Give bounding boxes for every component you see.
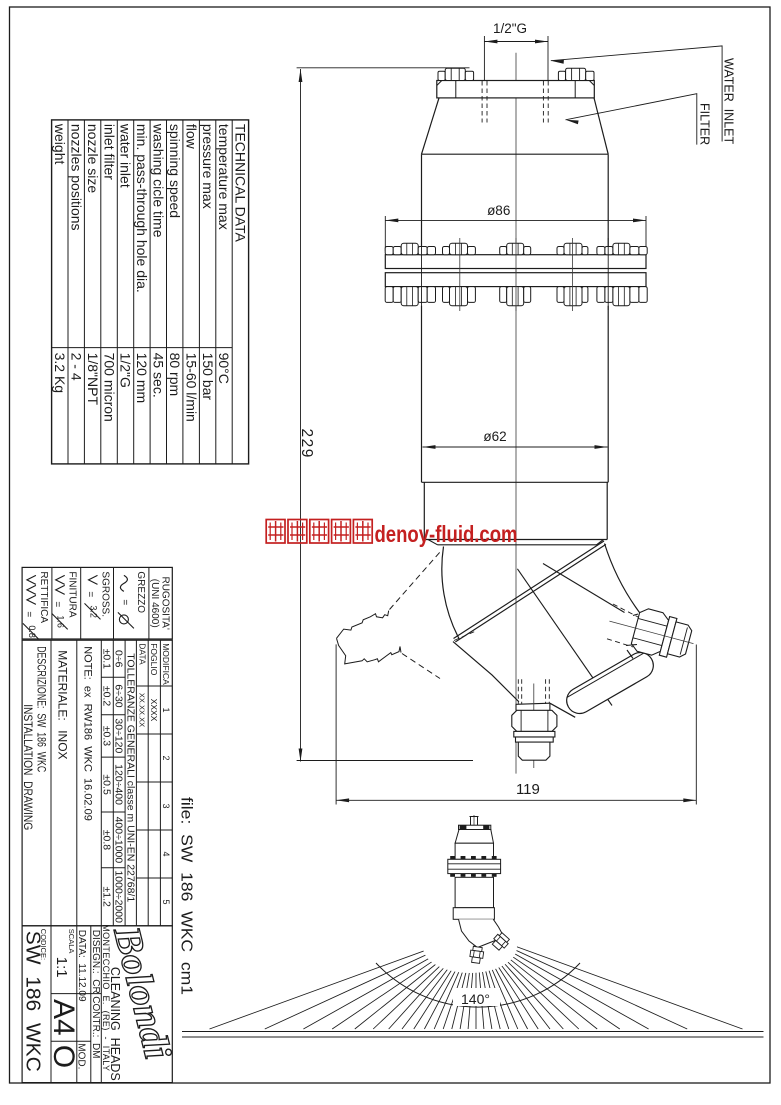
- svg-text:inlet filter: inlet filter: [101, 124, 117, 180]
- svg-text:±0.5: ±0.5: [100, 774, 112, 795]
- svg-text:80 rpm: 80 rpm: [167, 353, 183, 397]
- svg-text:5: 5: [161, 899, 171, 904]
- svg-text:FINITURA: FINITURA: [67, 571, 78, 617]
- svg-text:DISEGN.: CR: DISEGN.: CR: [90, 930, 101, 994]
- svg-text:INOX: INOX: [55, 730, 69, 759]
- svg-text:0÷6: 0÷6: [112, 650, 124, 668]
- svg-text:(UNI 4600): (UNI 4600): [149, 579, 160, 628]
- svg-text:RETTIFICA: RETTIFICA: [38, 571, 49, 623]
- svg-text:±0.1: ±0.1: [100, 649, 112, 670]
- svg-text:400÷1000: 400÷1000: [112, 817, 124, 864]
- svg-text:3: 3: [161, 803, 171, 808]
- svg-text:SCALA: SCALA: [67, 929, 76, 954]
- svg-text:ø62: ø62: [483, 429, 506, 444]
- svg-text:water inlet: water inlet: [118, 123, 134, 188]
- svg-text:flow: flow: [183, 124, 199, 150]
- svg-text:denoy-fluid.com: denoy-fluid.com: [375, 521, 518, 547]
- svg-text:MONTECCHIO E. (RE) - ITALY: MONTECCHIO E. (RE) - ITALY: [101, 924, 111, 1071]
- svg-text:4: 4: [161, 851, 171, 856]
- svg-text:A4: A4: [47, 999, 80, 1036]
- svg-text:2 - 4: 2 - 4: [68, 353, 84, 381]
- svg-text:DATA: DATA: [137, 643, 147, 665]
- svg-text:INSTALLATION DRAWING: INSTALLATION DRAWING: [21, 704, 33, 830]
- svg-text:=: =: [52, 601, 63, 607]
- svg-text:±0.2: ±0.2: [100, 686, 112, 707]
- svg-text:FILTER: FILTER: [698, 103, 712, 145]
- svg-text:120÷400: 120÷400: [112, 764, 124, 805]
- svg-text:±1.2: ±1.2: [100, 887, 112, 908]
- svg-text:120 mm: 120 mm: [134, 353, 150, 404]
- svg-text:30÷120: 30÷120: [112, 718, 124, 753]
- svg-text:temperature max: temperature max: [216, 124, 232, 230]
- svg-text:pressure max: pressure max: [200, 124, 216, 209]
- svg-text:CONTR.: DM: CONTR.: DM: [90, 996, 101, 1058]
- svg-text:washing cicle time: washing cicle time: [151, 123, 167, 238]
- svg-text:700 micron: 700 micron: [101, 353, 117, 422]
- svg-text:2: 2: [161, 755, 171, 760]
- svg-text:spinning speed: spinning speed: [167, 124, 183, 218]
- svg-text:6÷30: 6÷30: [112, 684, 124, 707]
- svg-text:SW 186 WKC: SW 186 WKC: [21, 931, 43, 1072]
- svg-text:±0.8: ±0.8: [100, 830, 112, 851]
- svg-text:119: 119: [516, 781, 540, 798]
- svg-text:MODIFICA: MODIFICA: [161, 643, 171, 685]
- svg-text:SGROSS.: SGROSS.: [100, 571, 111, 617]
- svg-text:1/2"G: 1/2"G: [493, 21, 527, 36]
- svg-text:NOTE: ex RW186 WKC 16.02.0: NOTE: ex RW186 WKC 16.02.09: [81, 646, 93, 821]
- svg-text:XX.XX.XX: XX.XX.XX: [137, 693, 146, 727]
- svg-text:1/8"NPT: 1/8"NPT: [85, 353, 101, 406]
- svg-text:229: 229: [298, 429, 315, 459]
- svg-text:WATER INLET: WATER INLET: [722, 58, 736, 144]
- svg-text:O: O: [47, 1045, 80, 1068]
- svg-text:1: 1: [161, 707, 171, 712]
- svg-text:min. pass-through hole dia.: min. pass-through hole dia.: [134, 124, 150, 293]
- svg-text:15-60 l/min: 15-60 l/min: [183, 353, 199, 422]
- svg-text:150 bar: 150 bar: [200, 353, 216, 401]
- svg-text:=: =: [119, 599, 130, 605]
- svg-text:nozzle size: nozzle size: [85, 124, 101, 193]
- svg-text:140°: 140°: [461, 991, 490, 1007]
- svg-text:DATA: 11.12.09: DATA: 11.12.09: [76, 930, 87, 1002]
- svg-text:3.2 Kg: 3.2 Kg: [52, 353, 68, 393]
- svg-text:file: SW 186 WKC cm1: file: SW 186 WKC cm1: [178, 797, 195, 995]
- svg-text:DESCRIZIONE: SW 186 WKC: DESCRIZIONE: SW 186 WKC: [34, 646, 46, 772]
- svg-text:FOGLIO: FOGLIO: [149, 643, 159, 676]
- svg-text:=: =: [85, 591, 96, 597]
- svg-text:nozzles positions: nozzles positions: [68, 124, 84, 231]
- svg-text:weight: weight: [52, 123, 68, 165]
- svg-text:XXXX: XXXX: [149, 699, 159, 722]
- svg-text:TOLLERANZE GENERALI classe m U: TOLLERANZE GENERALI classe m UNI-EN 2276…: [124, 653, 136, 902]
- svg-text:1:1: 1:1: [53, 957, 70, 978]
- svg-text:1/2"G: 1/2"G: [118, 353, 134, 388]
- svg-text:1000÷2000: 1000÷2000: [112, 870, 124, 923]
- svg-text:±0.3: ±0.3: [100, 726, 112, 747]
- svg-text:RUGOSITA': RUGOSITA': [159, 576, 170, 629]
- svg-text:ø86: ø86: [487, 203, 510, 218]
- svg-text:TECHNICAL DATA: TECHNICAL DATA: [233, 124, 249, 243]
- svg-text:GREZZO: GREZZO: [135, 571, 146, 613]
- svg-text:90°C: 90°C: [216, 353, 232, 384]
- svg-text:MATERIALE:: MATERIALE:: [55, 650, 69, 720]
- svg-text:45 sec.: 45 sec.: [151, 353, 167, 398]
- svg-text:=: =: [23, 611, 34, 617]
